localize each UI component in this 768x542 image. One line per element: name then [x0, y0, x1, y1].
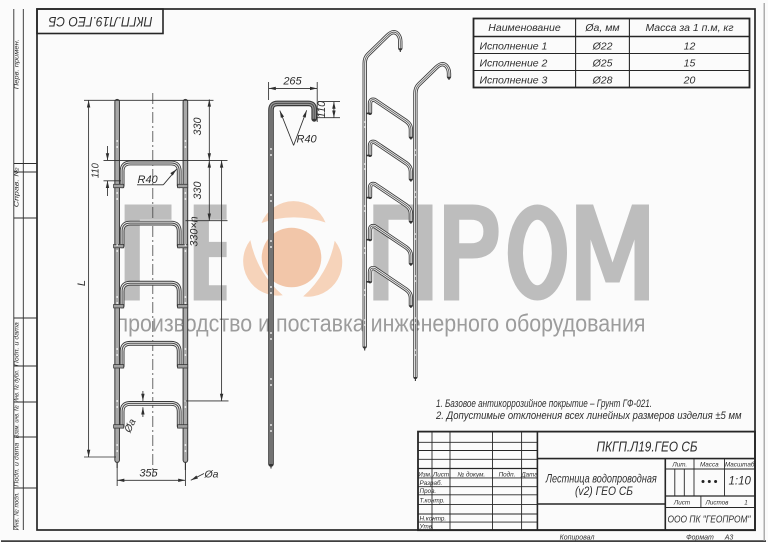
svg-text:Разраб.: Разраб.: [420, 479, 443, 487]
svg-text:R40: R40: [138, 174, 159, 186]
svg-text:1: 1: [744, 499, 748, 506]
svg-text:330: 330: [192, 181, 204, 199]
svg-text:1:10: 1:10: [729, 476, 752, 488]
svg-text:Т.контр.: Т.контр.: [420, 498, 445, 505]
svg-text:производство и поставка инжене: производство и поставка инженерного обор…: [117, 311, 646, 338]
svg-text:Лист: Лист: [432, 471, 449, 478]
svg-text:355: 355: [139, 468, 158, 480]
svg-text:Инв. № дубл.: Инв. № дубл.: [13, 370, 21, 403]
svg-text:Справ. №: Справ. №: [14, 167, 21, 207]
svg-text:1. Базовое антикоррозийное пок: 1. Базовое антикоррозийное покрытие – Гр…: [436, 398, 652, 410]
svg-text:Утв.: Утв.: [419, 524, 434, 531]
svg-text:Исполнение 2: Исполнение 2: [480, 58, 548, 70]
svg-text:Подп. и дата: Подп. и дата: [13, 322, 21, 366]
svg-text:ПКГП.Л19.ГЕО СБ: ПКГП.Л19.ГЕО СБ: [597, 440, 698, 456]
svg-text:Лист: Лист: [673, 499, 690, 506]
svg-text:15: 15: [684, 58, 696, 70]
svg-text:Ø22: Ø22: [592, 41, 613, 53]
svg-text:Листов: Листов: [705, 499, 730, 506]
svg-text:Масса за 1 п.м, кг: Масса за 1 п.м, кг: [645, 22, 733, 34]
svg-text:110: 110: [316, 101, 328, 118]
svg-text:ООО ПК "ГЕОПРОМ": ООО ПК "ГЕОПРОМ": [668, 514, 752, 526]
svg-text:Лит.: Лит.: [671, 462, 687, 469]
svg-text:Исполнение 1: Исполнение 1: [480, 41, 548, 53]
svg-text:Исполнение 3: Исполнение 3: [480, 75, 548, 87]
svg-text:330: 330: [192, 117, 204, 135]
svg-text:Перв. примен.: Перв. примен.: [14, 39, 21, 89]
svg-text:12: 12: [684, 41, 696, 53]
svg-text:№ докум.: № докум.: [457, 470, 485, 478]
svg-text:Взам. инв. №: Взам. инв. №: [14, 405, 21, 438]
svg-text:Ø25: Ø25: [592, 58, 613, 70]
svg-text:Наименование: Наименование: [488, 22, 561, 34]
svg-text:Масса: Масса: [700, 462, 719, 469]
svg-text:ПКГП.Л19.ГЕО СБ: ПКГП.Л19.ГЕО СБ: [48, 14, 152, 29]
svg-text:110: 110: [91, 163, 102, 178]
svg-text:2. Допустимые отклонения всех: 2. Допустимые отклонения всех линейных р…: [435, 410, 742, 422]
svg-text:Подп. и дата: Подп. и дата: [13, 442, 21, 486]
svg-text:20: 20: [683, 75, 696, 87]
svg-text:Лестница водопроводная: Лестница водопроводная: [545, 472, 657, 486]
svg-text:(v2) ГЕО СБ: (v2) ГЕО СБ: [575, 486, 633, 498]
svg-text:Масштаб: Масштаб: [725, 461, 755, 469]
svg-text:Øа, мм: Øа, мм: [584, 22, 619, 34]
svg-text:Øa: Øa: [204, 469, 219, 481]
svg-text:Подп.: Подп.: [499, 470, 516, 478]
svg-text:265: 265: [282, 76, 302, 88]
svg-text:330×n: 330×n: [189, 216, 201, 246]
svg-text:Н.контр.: Н.контр.: [420, 515, 447, 522]
svg-text:L: L: [76, 280, 88, 286]
svg-text:Изм.: Изм.: [418, 471, 431, 478]
svg-text:R40: R40: [297, 134, 318, 146]
svg-text:Инв. № подл.: Инв. № подл.: [13, 492, 21, 530]
svg-text:Ø28: Ø28: [592, 75, 613, 87]
svg-text:Дата: Дата: [520, 471, 538, 478]
svg-text:Пров.: Пров.: [420, 488, 437, 495]
